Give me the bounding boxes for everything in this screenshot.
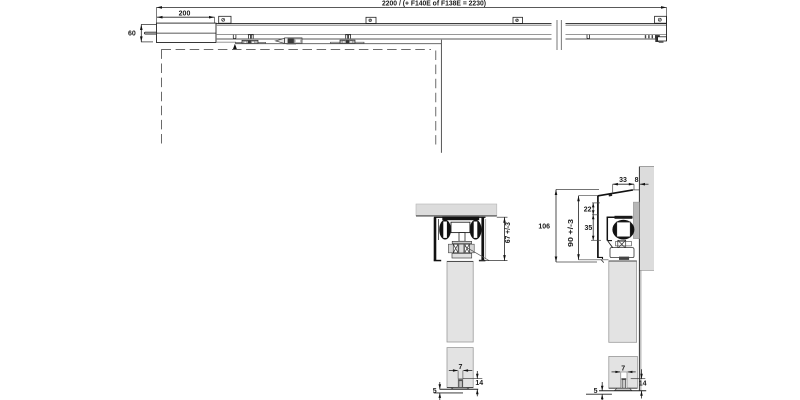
svg-text:14: 14 <box>475 380 483 387</box>
svg-text:33: 33 <box>619 177 627 184</box>
svg-text:7: 7 <box>458 364 462 371</box>
svg-text:67 +/-3: 67 +/-3 <box>505 222 512 243</box>
svg-text:8: 8 <box>635 177 639 184</box>
svg-text:90 +/-3: 90 +/-3 <box>568 219 575 247</box>
svg-text:14: 14 <box>639 381 647 388</box>
svg-text:106: 106 <box>538 223 550 230</box>
svg-text:60: 60 <box>128 31 136 38</box>
svg-text:2200 / (+ F140E of F138E = 223: 2200 / (+ F140E of F138E = 2230) <box>382 1 486 8</box>
svg-text:7: 7 <box>621 366 625 373</box>
svg-text:35: 35 <box>585 225 593 232</box>
svg-text:5: 5 <box>433 388 437 395</box>
svg-text:22: 22 <box>584 207 592 214</box>
svg-text:5: 5 <box>594 388 598 395</box>
svg-text:200: 200 <box>179 11 191 18</box>
